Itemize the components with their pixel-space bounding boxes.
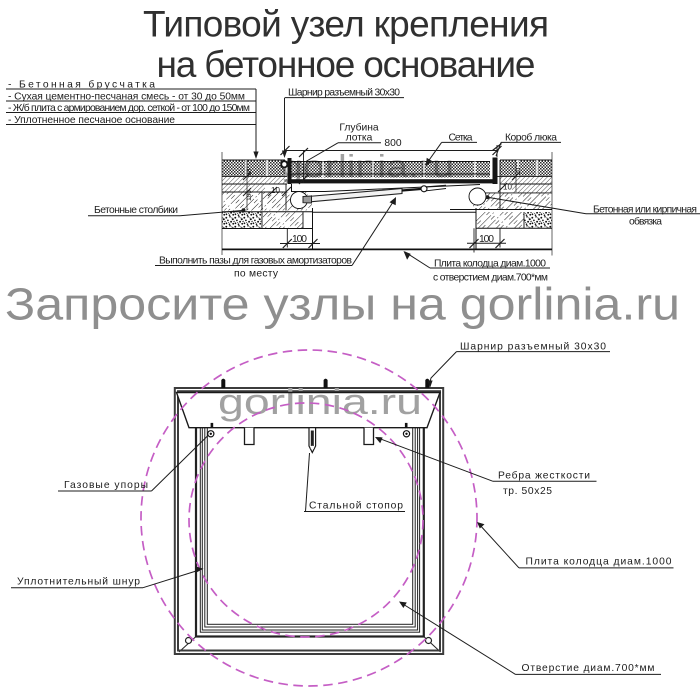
svg-text:Стальной стопор: Стальной стопор [309,501,403,512]
svg-text:с отверстием диам.700*мм: с отверстием диам.700*мм [433,273,548,284]
svg-text:800: 800 [384,138,401,149]
svg-text:Шарнир разъемный 30x30: Шарнир разъемный 30x30 [288,88,400,99]
svg-text:тр. 50x25: тр. 50x25 [503,486,552,497]
svg-text:по месту: по месту [234,269,279,280]
svg-text:Сетка: Сетка [449,133,473,144]
svg-text:Типовой узел крепления: Типовой узел крепления [143,4,549,45]
svg-text:Ребра жесткости: Ребра жесткости [498,470,590,482]
svg-text:Шарнир разъемный 30x30: Шарнир разъемный 30x30 [460,342,606,353]
svg-text:10: 10 [271,186,280,195]
svg-text:Уплотнительный шнур: Уплотнительный шнур [17,577,140,588]
svg-text:на бетонное основание: на бетонное основание [157,44,536,85]
svg-text:Запросите узлы на gorlinia.ru: Запросите узлы на gorlinia.ru [5,279,680,330]
svg-text:обвязка: обвязка [629,216,662,228]
svg-text:Бетонные столбики: Бетонные столбики [94,204,178,216]
svg-text:gorlinia.ru: gorlinia.ru [218,381,422,422]
svg-text:лотка: лотка [346,133,373,144]
svg-text:Отверстие диам.700*мм: Отверстие диам.700*мм [522,663,655,674]
svg-text:10: 10 [503,183,512,192]
svg-text:Выполнить пазы для газовых амо: Выполнить пазы для газовых амортизаторов [159,256,353,267]
svg-text:Газовые упоры: Газовые упоры [64,480,148,491]
svg-text:Плита колодца диам.1000: Плита колодца диам.1000 [526,557,672,568]
svg-text:Короб люка: Короб люка [505,132,557,144]
